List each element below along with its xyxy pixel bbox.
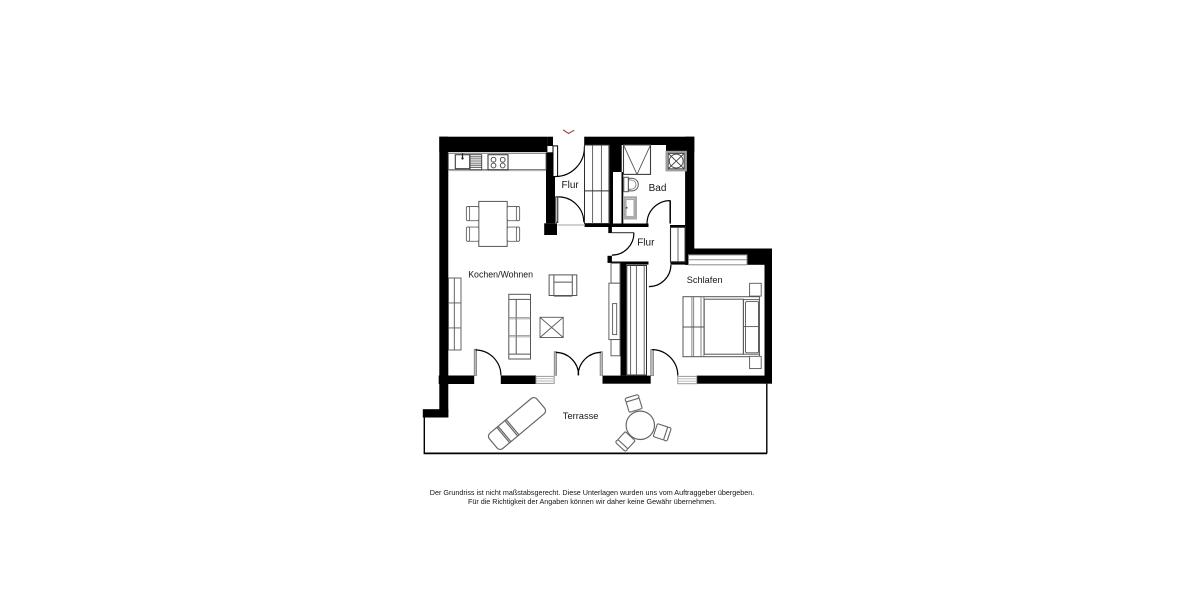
svg-text:Für die Richtigkeit der Angabe: Für die Richtigkeit der Angaben können w… xyxy=(468,497,716,506)
svg-text:Flur: Flur xyxy=(637,237,655,248)
svg-text:Kochen/Wohnen: Kochen/Wohnen xyxy=(468,269,533,279)
svg-text:Der Grundriss ist nicht maßsta: Der Grundriss ist nicht maßstabsgerecht.… xyxy=(430,488,754,497)
svg-text:Terrasse: Terrasse xyxy=(563,411,599,421)
svg-text:Schlafen: Schlafen xyxy=(687,275,723,285)
svg-text:Flur: Flur xyxy=(562,180,580,191)
svg-text:Bad: Bad xyxy=(649,183,667,194)
